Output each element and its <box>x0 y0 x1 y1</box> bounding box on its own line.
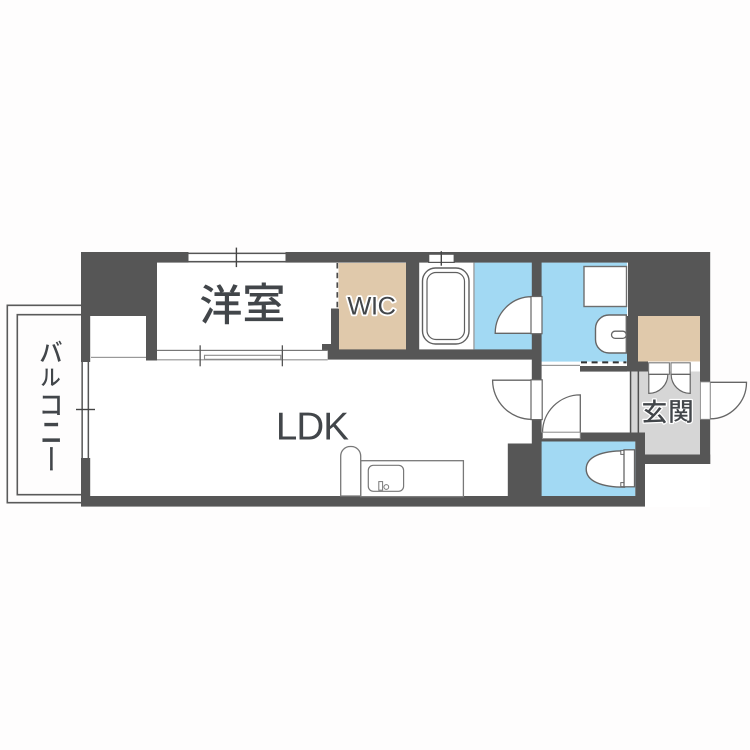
svg-text:WIC: WIC <box>347 293 395 321</box>
svg-text:LDK: LDK <box>276 406 349 449</box>
